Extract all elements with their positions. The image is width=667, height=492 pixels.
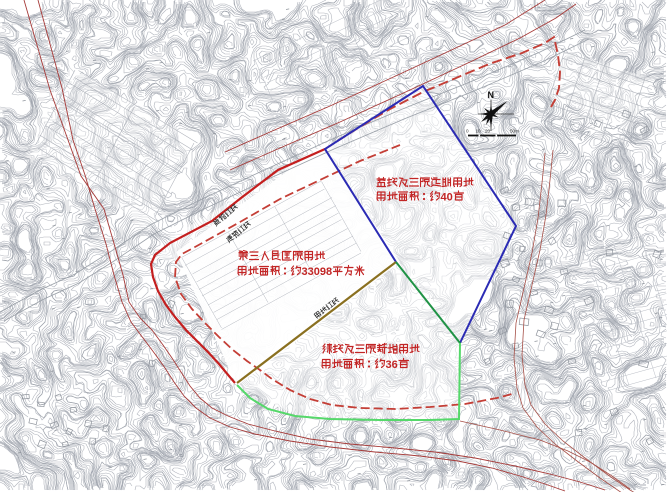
svg-text:10: 10 [476, 129, 482, 134]
svg-text:N: N [488, 90, 495, 100]
svg-text:40: 40 [441, 192, 453, 204]
svg-text:36: 36 [386, 359, 398, 371]
svg-text:33098: 33098 [302, 266, 333, 278]
svg-text:0: 0 [466, 129, 469, 134]
svg-text:50m: 50m [510, 129, 519, 134]
svg-text:20: 20 [485, 129, 491, 134]
